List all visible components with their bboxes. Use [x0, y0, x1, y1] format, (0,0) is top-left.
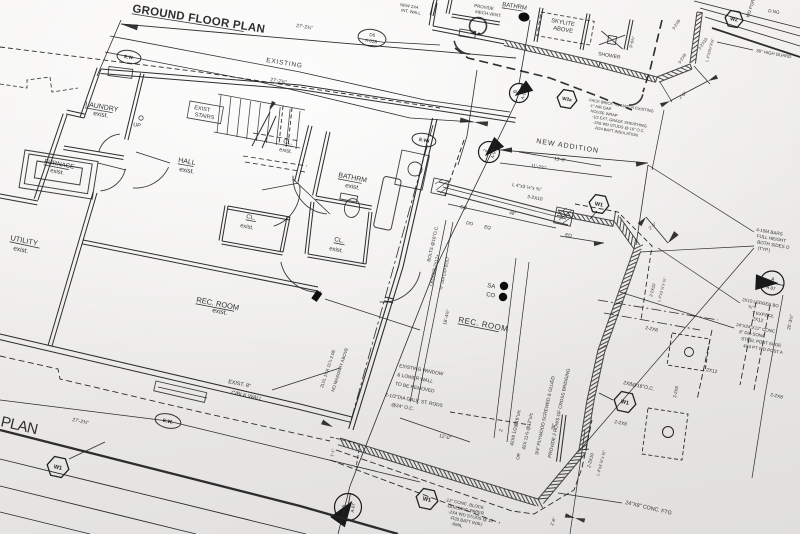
svg-text:EQ: EQ — [484, 224, 492, 230]
svg-text:2-2X10: 2-2X10 — [586, 452, 595, 468]
svg-text:W1: W1 — [422, 496, 431, 504]
svg-text:3-2X8: 3-2X8 — [671, 18, 682, 31]
svg-text:18'-4½": 18'-4½" — [441, 308, 450, 325]
svg-text:W2: W2 — [730, 16, 739, 23]
svg-text:2-2X10: 2-2X10 — [648, 282, 656, 297]
svg-text:SA: SA — [487, 283, 496, 290]
svg-text:2-2X8: 2-2X8 — [672, 385, 679, 398]
svg-text:E.W.: E.W. — [162, 418, 173, 426]
svg-text:L 4"x3 ½"x ⅜": L 4"x3 ½"x ⅜" — [595, 449, 607, 476]
svg-text:exist.: exist. — [329, 246, 344, 255]
svg-text:DO: DO — [466, 220, 474, 226]
svg-text:OR: OR — [515, 453, 521, 460]
svg-text:exist.: exist. — [13, 245, 29, 255]
svg-text:B: B — [512, 89, 519, 94]
svg-text:27'-2¾": 27'-2¾" — [296, 23, 314, 32]
svg-text:W2a: W2a — [562, 96, 573, 103]
svg-text:W1: W1 — [620, 399, 629, 407]
svg-text:A-07: A-07 — [350, 502, 357, 513]
svg-text:⅜": ⅜" — [748, 304, 754, 310]
svg-text:20'-3½": 20'-3½" — [785, 313, 794, 330]
svg-text:L 4"x3 ½"x ⅜": L 4"x3 ½"x ⅜" — [656, 276, 667, 302]
svg-text:48": 48" — [509, 210, 517, 216]
svg-text:exist.: exist. — [212, 307, 228, 317]
svg-text:2: 2 — [482, 148, 489, 153]
svg-text:INT. WALL: INT. WALL — [401, 8, 422, 16]
svg-text:exist.: exist. — [345, 182, 361, 192]
svg-text:L 4"x3 ½"x ⅜": L 4"x3 ½"x ⅜" — [512, 181, 543, 193]
svg-text:exist.: exist. — [279, 147, 293, 155]
svg-text:exist.: exist. — [93, 110, 109, 120]
svg-text:SHOWER: SHOWER — [598, 51, 622, 61]
svg-text:exist.: exist. — [179, 166, 195, 176]
svg-text:(TYP.): (TYP.) — [757, 246, 771, 253]
svg-text:A-07: A-07 — [766, 284, 777, 291]
svg-text:E.W.: E.W. — [419, 137, 429, 144]
svg-text:CO: CO — [486, 292, 496, 300]
svg-text:11'-2¾": 11'-2¾" — [531, 163, 547, 170]
svg-text:13'-0": 13'-0" — [554, 156, 567, 163]
svg-text:STAIRS: STAIRS — [194, 112, 215, 121]
svg-text:2'-6": 2'-6" — [549, 516, 557, 526]
svg-text:24"X8" CONC. FTG: 24"X8" CONC. FTG — [625, 500, 673, 517]
svg-text:-6MIL: -6MIL — [451, 521, 464, 528]
svg-text:2: 2 — [498, 428, 504, 432]
svg-text:12'-0": 12'-0" — [439, 433, 452, 441]
svg-text:½" DIA EXP.BOLT: ½" DIA EXP.BOLT — [438, 256, 451, 290]
svg-text:42X 11⅞ @12"o/c: 42X 11⅞ @12"o/c — [521, 412, 534, 450]
svg-text:D6: D6 — [369, 32, 376, 38]
svg-text:36" HIGH GUARD: 36" HIGH GUARD — [756, 48, 792, 59]
svg-text:2X12: 2X12 — [706, 367, 719, 375]
svg-text:exist.: exist. — [50, 168, 65, 177]
svg-text:exist.: exist. — [240, 223, 255, 232]
svg-text:42X9 1/2@16"o/c: 42X9 1/2@16"o/c — [509, 409, 522, 447]
svg-text:27'-2¾": 27'-2¾" — [72, 417, 90, 426]
svg-text:3-2X10: 3-2X10 — [527, 194, 544, 203]
svg-text:2-2X8: 2-2X8 — [614, 419, 628, 428]
svg-text:2-2X8: 2-2X8 — [645, 325, 659, 334]
svg-text:2-2X8: 2-2X8 — [770, 392, 784, 401]
svg-text:E.W.: E.W. — [124, 54, 134, 60]
svg-text:3-2X8: 3-2X8 — [677, 52, 688, 65]
svg-text:W1: W1 — [53, 464, 62, 472]
svg-text:@24" O.C.: @24" O.C. — [391, 402, 415, 412]
svg-text:NEW ADDITION: NEW ADDITION — [536, 138, 600, 155]
svg-text:2'-8": 2'-8" — [678, 90, 688, 100]
svg-text:UP: UP — [133, 122, 142, 129]
svg-text:REC. ROOM: REC. ROOM — [458, 315, 510, 334]
svg-text:1'-1": 1'-1" — [329, 448, 336, 457]
svg-text:BATHRM: BATHRM — [502, 2, 528, 12]
svg-text:2X12: 2X12 — [752, 316, 765, 324]
svg-text:D.NG: D.NG — [768, 8, 781, 15]
svg-text:EXISTING: EXISTING — [266, 57, 303, 70]
